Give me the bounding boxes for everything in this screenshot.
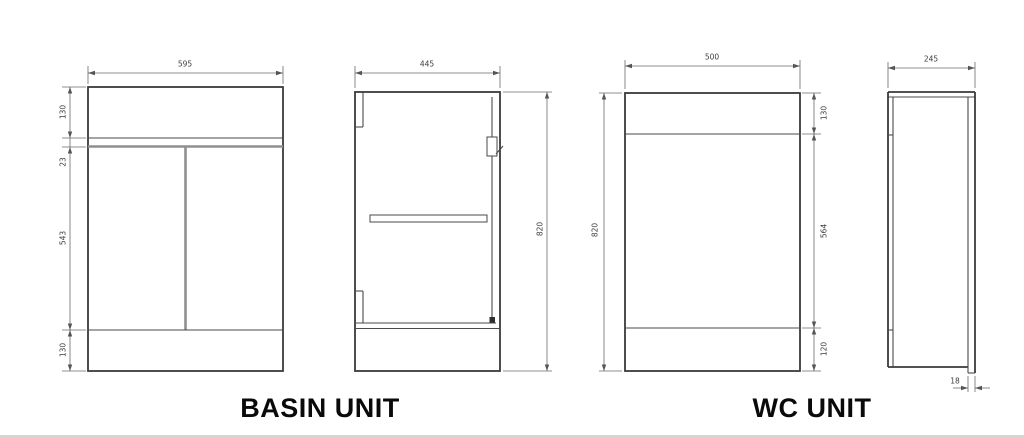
arrowhead	[68, 132, 72, 139]
wc-front-dimensions	[599, 60, 821, 371]
arrowhead	[888, 66, 895, 71]
basin-front-dimensions	[62, 66, 283, 371]
arrowhead	[793, 64, 800, 69]
arrowhead	[812, 93, 816, 100]
arrowhead	[602, 93, 606, 100]
basin-side-carcass	[355, 92, 500, 371]
wc-side-view	[888, 92, 975, 373]
arrowhead	[975, 386, 982, 390]
arrowhead	[68, 365, 72, 372]
arrowhead	[812, 128, 816, 135]
basin-side-shelf	[370, 215, 487, 222]
basin-side-dimensions	[355, 66, 552, 371]
arrowhead	[68, 87, 72, 94]
arrowhead	[961, 386, 968, 390]
dim-wc-front-height: 820	[591, 223, 599, 237]
dim-basin-side-depth: 445	[420, 60, 434, 68]
dim-wc-front-width: 500	[705, 53, 719, 61]
arrowhead	[68, 330, 72, 337]
dim-wc-front-height-2: 564	[820, 224, 828, 238]
arrowhead	[493, 71, 500, 76]
drawing-linework	[0, 0, 1024, 437]
dim-basin-front-height-3: 543	[59, 231, 67, 245]
basin-side-door-foot	[490, 317, 496, 323]
dim-basin-side-height: 820	[536, 222, 544, 236]
arrowhead	[602, 365, 606, 372]
arrowhead	[812, 328, 816, 335]
basin-front-view	[88, 87, 283, 371]
arrowhead	[968, 66, 975, 71]
dim-wc-front-height-1: 130	[820, 106, 828, 120]
wc-front-view	[625, 93, 800, 371]
arrowhead	[812, 134, 816, 141]
dim-basin-front-width: 595	[178, 60, 192, 68]
wc-unit-title: WC UNIT	[753, 393, 872, 424]
arrowhead	[276, 71, 283, 76]
arrowhead	[812, 322, 816, 329]
basin-unit-title: BASIN UNIT	[240, 393, 400, 424]
arrowhead	[355, 71, 362, 76]
technical-drawing-sheet: 595 130 23 543 130 445 820 500 820 130 5…	[0, 0, 1024, 437]
dim-basin-front-height-4: 130	[59, 343, 67, 357]
dim-wc-side-panel: 18	[950, 377, 960, 385]
dim-basin-front-height-1: 130	[59, 105, 67, 119]
arrowhead	[68, 324, 72, 331]
dim-wc-front-height-3: 120	[820, 342, 828, 356]
basin-side-hinge-bracket	[487, 137, 497, 156]
arrowhead	[625, 64, 632, 69]
basin-side-view	[355, 92, 503, 371]
arrowhead	[68, 147, 72, 154]
arrowhead	[545, 365, 549, 372]
arrowhead	[545, 92, 549, 99]
arrowhead	[812, 365, 816, 372]
arrowhead	[88, 71, 95, 76]
wc-front-carcass	[625, 93, 800, 371]
dim-wc-side-depth: 245	[924, 55, 938, 63]
dim-basin-front-height-2: 23	[59, 157, 67, 167]
